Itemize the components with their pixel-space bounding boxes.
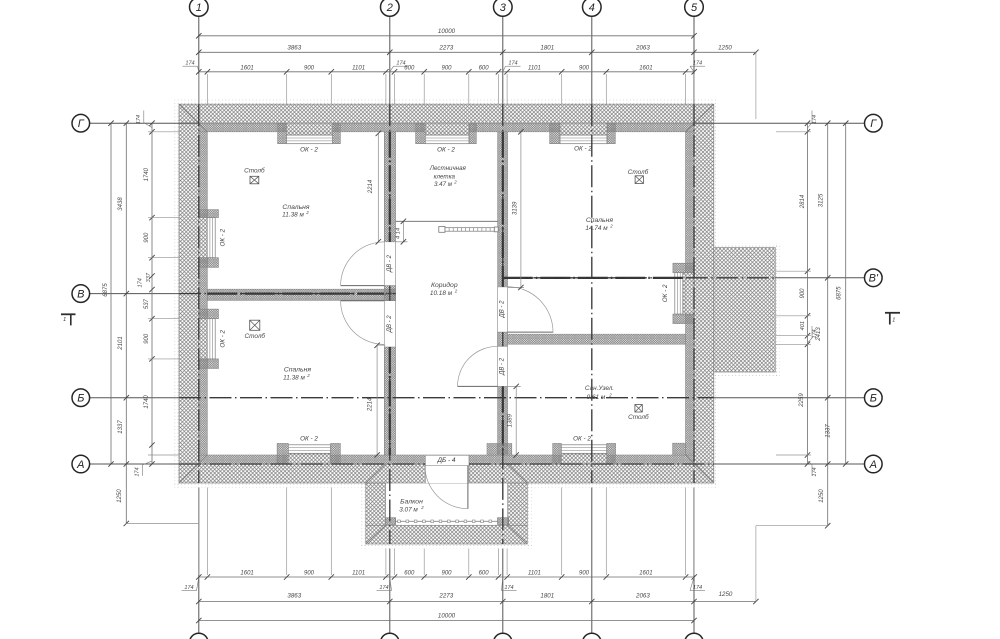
svg-text:9.61 м: 9.61 м	[587, 394, 606, 401]
svg-text:Столб: Столб	[245, 332, 266, 340]
svg-text:А: А	[869, 459, 877, 471]
svg-text:401: 401	[800, 321, 806, 330]
svg-text:4 14: 4 14	[395, 228, 401, 239]
svg-text:ДВ - 2: ДВ - 2	[387, 315, 393, 334]
svg-text:2: 2	[306, 373, 310, 378]
svg-text:ДВ - 2: ДВ - 2	[500, 357, 506, 376]
svg-text:6875: 6875	[837, 286, 843, 300]
svg-text:1101: 1101	[352, 570, 365, 576]
svg-text:ОК - 2: ОК - 2	[574, 145, 592, 152]
svg-text:Столб: Столб	[244, 167, 265, 175]
svg-text:1601: 1601	[240, 65, 253, 71]
svg-text:900: 900	[441, 570, 452, 576]
svg-text:3863: 3863	[287, 593, 301, 600]
svg-text:174: 174	[693, 585, 702, 591]
svg-text:ДБ - 4: ДБ - 4	[437, 457, 456, 464]
svg-text:900: 900	[144, 333, 150, 344]
svg-text:Балкон: Балкон	[400, 499, 423, 506]
svg-text:1337: 1337	[118, 420, 124, 434]
svg-text:1601: 1601	[639, 65, 652, 71]
svg-text:Столб: Столб	[628, 168, 649, 176]
svg-text:900: 900	[144, 232, 150, 243]
svg-text:174: 174	[693, 61, 702, 67]
svg-text:1250: 1250	[718, 45, 732, 52]
svg-text:174: 174	[184, 585, 193, 591]
svg-text:Сан.Узел.: Сан.Узел.	[585, 385, 614, 392]
svg-text:2259: 2259	[799, 393, 805, 408]
svg-text:клетка: клетка	[434, 174, 456, 181]
svg-text:2: 2	[420, 505, 424, 510]
svg-text:5: 5	[691, 2, 698, 14]
svg-text:2273: 2273	[438, 45, 453, 52]
svg-text:1601: 1601	[639, 570, 652, 576]
svg-text:537: 537	[144, 298, 150, 309]
svg-text:Г: Г	[870, 118, 877, 130]
svg-text:ОК - 2: ОК - 2	[437, 146, 455, 153]
svg-text:ОК - 2: ОК - 2	[573, 436, 591, 443]
svg-text:2214: 2214	[368, 179, 374, 194]
svg-text:174: 174	[812, 467, 818, 476]
svg-text:ОК - 2: ОК - 2	[300, 146, 318, 153]
svg-text:1: 1	[63, 317, 66, 323]
svg-text:4: 4	[589, 2, 595, 14]
svg-text:В: В	[77, 288, 84, 300]
svg-text:174: 174	[135, 467, 141, 476]
svg-text:1250: 1250	[719, 591, 733, 598]
svg-text:3: 3	[500, 2, 507, 14]
svg-text:Г: Г	[78, 118, 85, 130]
svg-text:900: 900	[304, 65, 315, 71]
svg-text:Б: Б	[77, 393, 84, 405]
svg-text:600: 600	[404, 570, 415, 576]
svg-text:900: 900	[800, 288, 806, 299]
svg-text:3.07 м: 3.07 м	[399, 507, 418, 514]
svg-text:1337: 1337	[826, 424, 832, 438]
svg-text:174: 174	[812, 115, 818, 124]
svg-text:337: 337	[146, 272, 152, 282]
svg-text:ДВ - 2: ДВ - 2	[500, 300, 506, 319]
svg-text:3.47 м: 3.47 м	[434, 181, 453, 188]
svg-text:174: 174	[138, 278, 144, 287]
svg-text:900: 900	[579, 65, 590, 71]
svg-text:2273: 2273	[438, 593, 453, 600]
svg-text:2814: 2814	[800, 194, 806, 209]
svg-text:1740: 1740	[144, 395, 150, 409]
svg-text:ОК - 2: ОК - 2	[220, 329, 227, 347]
svg-text:2: 2	[453, 180, 457, 185]
svg-text:11.38 м: 11.38 м	[283, 374, 305, 381]
svg-text:2: 2	[609, 223, 613, 228]
svg-text:10000: 10000	[438, 28, 456, 35]
svg-text:2: 2	[305, 210, 309, 215]
svg-text:А: А	[76, 459, 84, 471]
svg-text:10.18 м: 10.18 м	[430, 290, 453, 297]
svg-text:1101: 1101	[352, 65, 365, 71]
svg-text:1601: 1601	[240, 570, 253, 576]
svg-text:2: 2	[454, 289, 458, 294]
svg-text:900: 900	[441, 65, 452, 71]
svg-text:Лестничная: Лестничная	[429, 165, 467, 172]
svg-text:2214: 2214	[367, 397, 373, 412]
svg-text:3139: 3139	[512, 201, 518, 215]
svg-text:2063: 2063	[635, 593, 650, 600]
svg-text:600: 600	[479, 65, 490, 71]
svg-text:1: 1	[892, 318, 895, 324]
svg-text:1740: 1740	[144, 167, 150, 181]
svg-text:6875: 6875	[103, 283, 109, 297]
svg-text:1801: 1801	[540, 45, 554, 52]
svg-text:1801: 1801	[540, 593, 554, 600]
svg-text:ДВ - 2: ДВ - 2	[387, 254, 393, 273]
svg-text:Б: Б	[870, 393, 877, 405]
svg-text:Столб: Столб	[628, 413, 649, 421]
svg-text:2063: 2063	[635, 45, 650, 52]
svg-text:ОК - 2: ОК - 2	[300, 436, 318, 443]
svg-text:Спальня: Спальня	[586, 217, 614, 224]
svg-text:2413: 2413	[816, 327, 822, 342]
svg-text:2: 2	[608, 392, 612, 397]
svg-text:1250: 1250	[819, 489, 825, 503]
svg-text:600: 600	[479, 570, 490, 576]
svg-text:174: 174	[508, 61, 517, 67]
svg-text:900: 900	[579, 570, 590, 576]
svg-text:3863: 3863	[287, 45, 301, 52]
svg-text:1389: 1389	[508, 413, 514, 427]
svg-text:3438: 3438	[118, 197, 124, 211]
svg-text:В': В'	[869, 273, 879, 285]
svg-text:14.74 м: 14.74 м	[585, 225, 608, 232]
svg-text:174: 174	[185, 61, 194, 67]
svg-text:ОК - 2: ОК - 2	[662, 284, 669, 302]
svg-text:1101: 1101	[528, 65, 541, 71]
svg-text:1101: 1101	[528, 570, 541, 576]
svg-text:10000: 10000	[438, 612, 456, 619]
svg-text:ОК - 2: ОК - 2	[220, 228, 227, 246]
svg-text:174: 174	[396, 61, 405, 67]
svg-text:900: 900	[304, 570, 315, 576]
svg-text:2101: 2101	[118, 336, 124, 350]
svg-text:174: 174	[504, 585, 513, 591]
svg-text:174: 174	[136, 115, 142, 124]
svg-text:2: 2	[386, 2, 393, 14]
svg-text:1: 1	[196, 2, 202, 14]
svg-text:1250: 1250	[117, 489, 123, 503]
svg-text:3125: 3125	[819, 193, 825, 207]
svg-text:174: 174	[379, 585, 388, 591]
svg-text:11.38 м: 11.38 м	[282, 212, 304, 219]
